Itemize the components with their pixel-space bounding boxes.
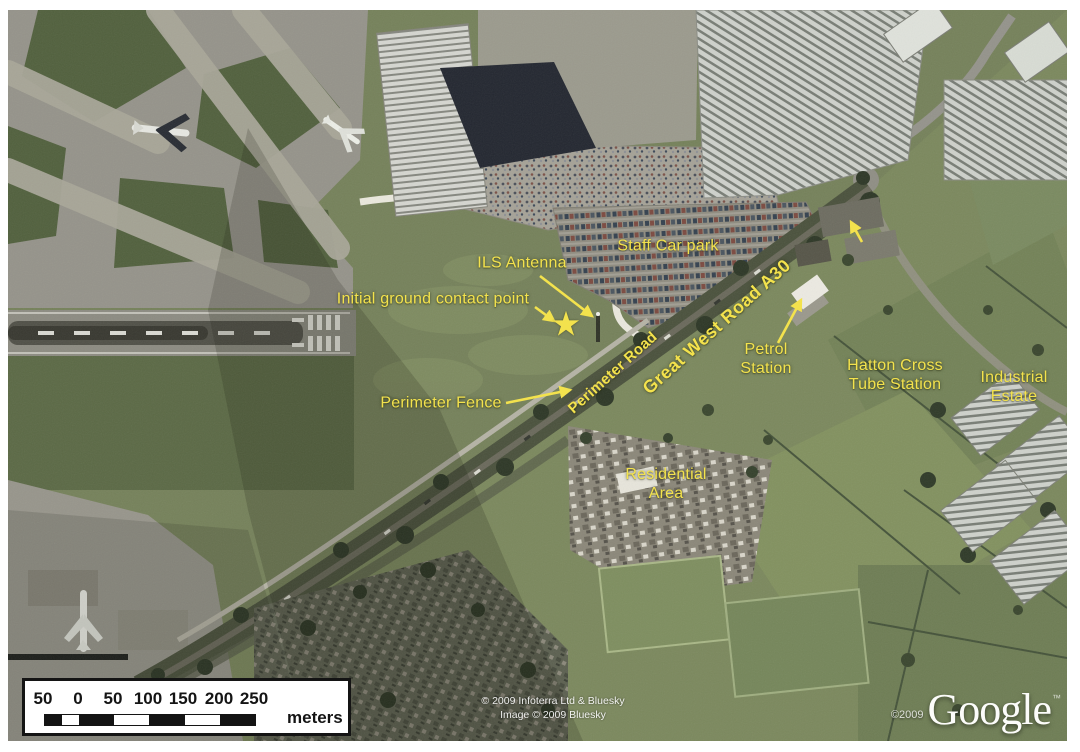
google-logo: Google: [927, 689, 1051, 731]
label-staff-car-park: Staff Car park: [617, 238, 718, 257]
label-industrial-estate: Industrial Estate: [981, 369, 1048, 407]
label-petrol-station: Petrol Station: [740, 341, 791, 379]
scale-tick: 250: [240, 689, 268, 709]
google-watermark: ©2009 Google ™: [891, 689, 1061, 731]
scale-tick: 50: [104, 689, 123, 709]
label-ils-antenna: ILS Antenna: [477, 255, 566, 274]
label-initial-ground-contact-point: Initial ground contact point: [337, 291, 529, 310]
google-trademark: ™: [1052, 693, 1061, 703]
label-residential-area: Residential Area: [625, 466, 706, 504]
google-copyright: ©2009: [891, 709, 924, 721]
scale-bar-segments: [44, 714, 256, 726]
credit-line-1: © 2009 Infoterra Ltd & Bluesky: [481, 694, 624, 708]
scale-tick: 100: [134, 689, 162, 709]
scale-unit-label: meters: [287, 708, 343, 728]
scale-tick: 0: [73, 689, 82, 709]
credit-line-2: Image © 2009 Bluesky: [481, 708, 624, 722]
impact-point-star-icon: ★: [551, 309, 581, 343]
scale-tick: 150: [169, 689, 197, 709]
scale-tick: 50: [34, 689, 53, 709]
label-hatton-cross-tube-station: Hatton Cross Tube Station: [847, 357, 943, 395]
scale-bar: 50 0 50 100 150 200 250 meters: [22, 678, 351, 736]
aerial-map: Staff Car park ILS Antenna Initial groun…: [8, 10, 1067, 741]
imagery-credits: © 2009 Infoterra Ltd & Bluesky Image © 2…: [481, 694, 624, 722]
label-perimeter-fence: Perimeter Fence: [380, 395, 501, 414]
figure-frame: Staff Car park ILS Antenna Initial groun…: [0, 0, 1080, 752]
scale-tick: 200: [205, 689, 233, 709]
